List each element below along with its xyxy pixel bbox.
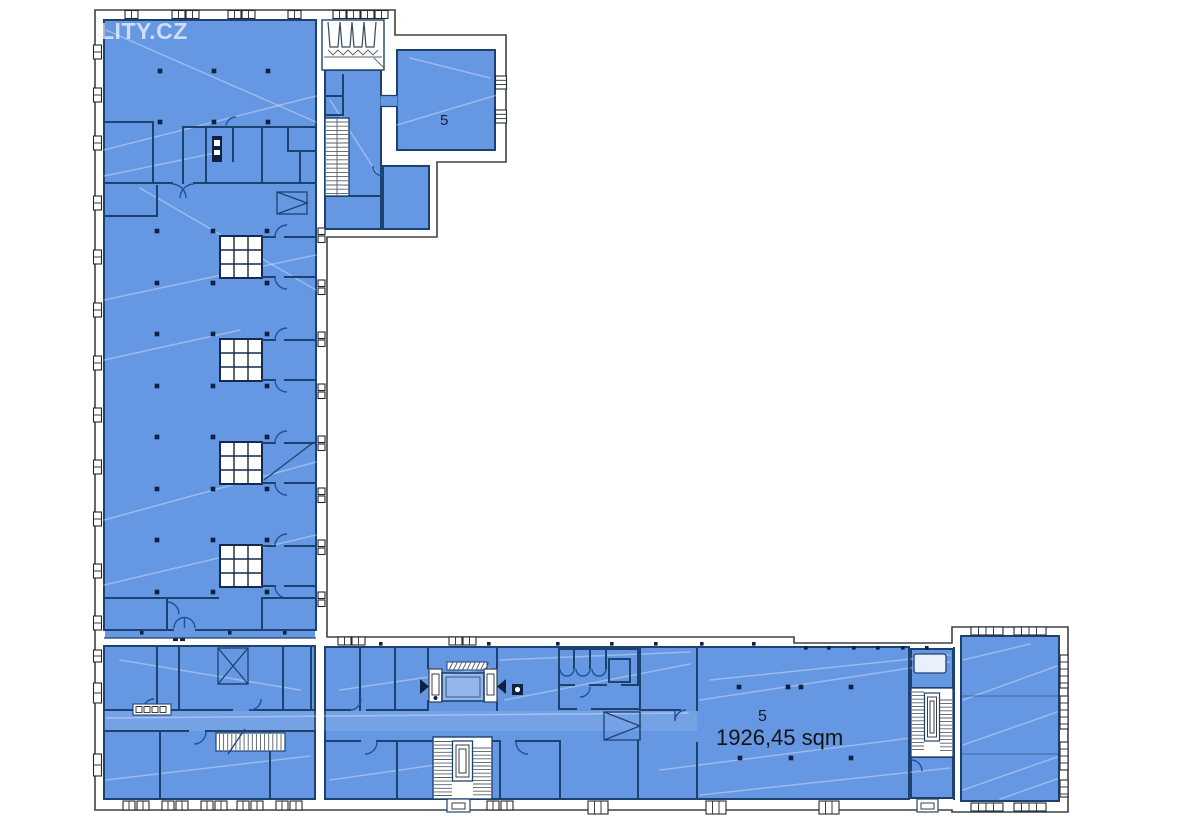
svg-text:5: 5 (758, 708, 767, 725)
svg-text:1926,45 sqm: 1926,45 sqm (716, 725, 843, 750)
svg-text:LITY.CZ: LITY.CZ (100, 18, 188, 44)
svg-text:5: 5 (440, 112, 448, 129)
